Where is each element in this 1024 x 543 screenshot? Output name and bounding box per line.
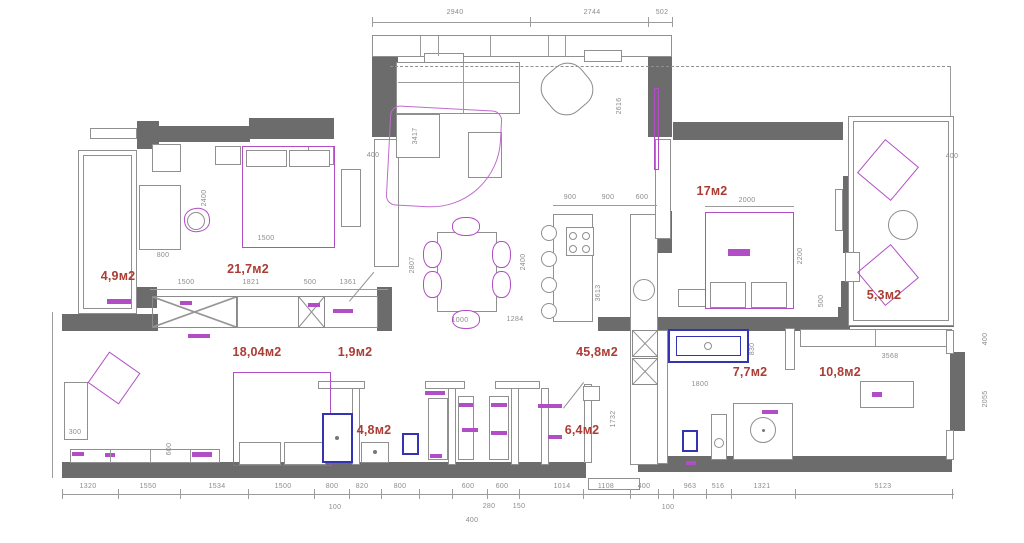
dimension-label: 5123 bbox=[875, 483, 892, 491]
dimension-label: 400 bbox=[367, 152, 380, 160]
plumbing-fixture bbox=[682, 430, 698, 452]
cabinet-outline bbox=[785, 328, 795, 370]
hatched-wardrobe bbox=[632, 330, 658, 357]
dimension-tick bbox=[349, 489, 350, 499]
furniture-outline bbox=[242, 146, 335, 248]
chair-outline bbox=[492, 271, 511, 298]
annotation-mark bbox=[728, 249, 750, 256]
hatched-wardrobe bbox=[632, 358, 658, 385]
dimension-tick bbox=[795, 489, 796, 499]
dimension-tick bbox=[672, 17, 673, 27]
dimension-line bbox=[110, 450, 111, 463]
dimension-line bbox=[565, 36, 566, 56]
area-label: 1,9м2 bbox=[338, 345, 373, 359]
dimension-label: 1500 bbox=[178, 279, 195, 287]
dimension-label: 1800 bbox=[692, 381, 709, 389]
circle-fixture bbox=[541, 251, 557, 267]
annotation-mark bbox=[192, 452, 212, 457]
circle-fixture bbox=[888, 210, 918, 240]
dashed-ceiling-line bbox=[390, 66, 950, 67]
dimension-tick bbox=[248, 489, 249, 499]
circle-fixture bbox=[582, 245, 590, 253]
dimension-tick bbox=[519, 489, 520, 499]
circle-fixture bbox=[582, 232, 590, 240]
cabinet-outline bbox=[584, 50, 622, 62]
rug-outline bbox=[385, 105, 502, 211]
dimension-label: 3568 bbox=[882, 353, 899, 361]
cabinet-outline bbox=[541, 388, 549, 465]
dimension-label: 500 bbox=[818, 295, 826, 308]
cabinet-outline bbox=[215, 146, 241, 165]
dimension-line bbox=[150, 289, 388, 290]
cabinet-outline bbox=[845, 252, 860, 282]
dimension-label: 280 bbox=[483, 503, 496, 511]
wall-segment bbox=[648, 55, 672, 137]
circle-fixture bbox=[633, 279, 655, 301]
chair-outline bbox=[452, 217, 480, 236]
wall-segment bbox=[377, 287, 392, 331]
dimension-line bbox=[548, 36, 549, 56]
dimension-tick bbox=[530, 17, 531, 27]
dimension-label: 150 bbox=[513, 503, 526, 511]
cabinet-outline bbox=[711, 414, 727, 460]
chair-outline bbox=[423, 271, 442, 298]
dimension-label: 100 bbox=[662, 504, 675, 512]
dimension-line bbox=[62, 494, 954, 495]
hatched-wardrobe bbox=[298, 296, 325, 328]
chair-outline bbox=[492, 241, 511, 268]
dimension-label: 820 bbox=[356, 483, 369, 491]
cabinet-outline bbox=[152, 144, 181, 172]
cabinet-outline bbox=[583, 386, 600, 401]
dimension-label: 400 bbox=[982, 333, 990, 346]
annotation-mark bbox=[188, 334, 210, 338]
cabinet-outline bbox=[428, 398, 448, 460]
area-label: 5,3м2 bbox=[867, 288, 902, 302]
area-label: 4,9м2 bbox=[101, 269, 136, 283]
dimension-tick bbox=[487, 489, 488, 499]
dimension-line bbox=[398, 82, 520, 83]
dimension-label: 2000 bbox=[739, 197, 756, 205]
dimension-tick bbox=[314, 489, 315, 499]
dimension-label: 800 bbox=[326, 483, 339, 491]
cabinet-outline bbox=[341, 169, 361, 227]
dimension-label: 400 bbox=[466, 517, 479, 525]
annotation-mark bbox=[107, 299, 131, 304]
annotation-mark bbox=[459, 403, 473, 407]
area-label: 6,4м2 bbox=[565, 423, 600, 437]
dimension-tick bbox=[706, 489, 707, 499]
drain-dot bbox=[762, 429, 765, 432]
dimension-label: 900 bbox=[564, 194, 577, 202]
annotation-mark bbox=[333, 309, 353, 313]
dimension-label: 600 bbox=[496, 483, 509, 491]
furniture-outline bbox=[705, 212, 794, 309]
dimension-tick bbox=[419, 489, 420, 499]
cabinet-outline bbox=[678, 289, 706, 307]
dimension-label: 1321 bbox=[754, 483, 771, 491]
cabinet-outline bbox=[83, 155, 132, 309]
cabinet-outline bbox=[237, 296, 299, 328]
annotation-mark bbox=[425, 391, 445, 395]
dimension-line bbox=[438, 36, 439, 56]
dimension-label: 2940 bbox=[447, 9, 464, 17]
dimension-label: 2400 bbox=[201, 190, 209, 207]
dimension-tick bbox=[180, 489, 181, 499]
cabinet-outline bbox=[425, 381, 465, 389]
dimension-line bbox=[463, 63, 464, 113]
dimension-label: 100 bbox=[329, 504, 342, 512]
annotation-mark bbox=[538, 404, 562, 408]
dimension-label: 2807 bbox=[409, 257, 417, 274]
dimension-label: 600 bbox=[462, 483, 475, 491]
dimension-tick bbox=[630, 489, 631, 499]
chair-outline bbox=[423, 241, 442, 268]
wall-segment bbox=[158, 126, 250, 142]
dimension-tick bbox=[648, 17, 649, 27]
area-label: 17м2 bbox=[697, 184, 728, 198]
floor-plan-canvas: 2940274450215001821500136124008001500400… bbox=[0, 0, 1024, 543]
dimension-label: 500 bbox=[304, 279, 317, 287]
dimension-tick bbox=[673, 489, 674, 499]
cabinet-outline bbox=[511, 388, 519, 465]
circle-fixture bbox=[704, 342, 712, 350]
dimension-tick bbox=[372, 17, 373, 27]
annotation-mark bbox=[308, 303, 320, 307]
dimension-label: 2400 bbox=[520, 254, 528, 271]
dimension-label: 400 bbox=[638, 483, 651, 491]
dimension-label: 1000 bbox=[452, 317, 469, 325]
dimension-label: 1014 bbox=[554, 483, 571, 491]
annotation-mark bbox=[180, 301, 192, 305]
dimension-label: 3613 bbox=[595, 285, 603, 302]
dimension-label: 600 bbox=[166, 443, 174, 456]
cabinet-outline bbox=[860, 381, 914, 408]
dimension-tick bbox=[952, 489, 953, 499]
dimension-label: 2055 bbox=[982, 391, 990, 408]
dimension-tick bbox=[658, 489, 659, 499]
dimension-line bbox=[52, 312, 53, 478]
cabinet-outline bbox=[437, 232, 497, 312]
dimension-label: 2744 bbox=[584, 9, 601, 17]
cabinet-outline bbox=[90, 128, 137, 139]
circle-fixture bbox=[541, 303, 557, 319]
door-swing-line bbox=[563, 382, 584, 409]
area-label: 10,8м2 bbox=[819, 365, 861, 379]
dimension-line bbox=[372, 22, 672, 23]
dimension-label: 800 bbox=[157, 252, 170, 260]
annotation-mark bbox=[762, 410, 778, 414]
annotation-mark bbox=[72, 452, 84, 456]
plumbing-fixture bbox=[402, 433, 419, 455]
dimension-label: 800 bbox=[394, 483, 407, 491]
dimension-label: 1361 bbox=[340, 279, 357, 287]
annotation-mark bbox=[491, 431, 507, 435]
area-label: 21,7м2 bbox=[227, 262, 269, 276]
cabinet-outline bbox=[139, 185, 181, 250]
dimension-label: 1732 bbox=[610, 411, 618, 428]
cabinet-outline bbox=[372, 35, 672, 57]
circle-fixture bbox=[373, 450, 377, 454]
furniture-outline bbox=[88, 352, 141, 405]
dimension-label: 300 bbox=[69, 429, 82, 437]
dimension-label: 1500 bbox=[275, 483, 292, 491]
dimension-label: 830 bbox=[749, 343, 757, 356]
circle-fixture bbox=[541, 277, 557, 293]
circle-fixture bbox=[541, 225, 557, 241]
furniture-outline bbox=[233, 372, 331, 466]
dimension-line bbox=[705, 206, 794, 207]
annotation-mark bbox=[872, 392, 882, 397]
area-label: 4,8м2 bbox=[357, 423, 392, 437]
cabinet-outline bbox=[448, 388, 456, 465]
dimension-label: 400 bbox=[946, 153, 959, 161]
dimension-line bbox=[420, 36, 421, 56]
dimension-label: 963 bbox=[684, 483, 697, 491]
area-label: 45,8м2 bbox=[576, 345, 618, 359]
wall-segment bbox=[249, 118, 334, 139]
dimension-tick bbox=[381, 489, 382, 499]
cabinet-outline bbox=[946, 330, 954, 354]
dimension-label: 502 bbox=[656, 9, 669, 17]
circle-fixture bbox=[187, 212, 205, 230]
dimension-label: 1821 bbox=[243, 279, 260, 287]
wall-segment bbox=[62, 314, 158, 331]
dimension-tick bbox=[452, 489, 453, 499]
dimension-line bbox=[490, 36, 491, 56]
dimension-tick bbox=[118, 489, 119, 499]
dimension-label: 3417 bbox=[412, 128, 420, 145]
area-label: 18,04м2 bbox=[233, 345, 282, 359]
annotation-mark bbox=[548, 435, 562, 439]
dimension-label: 1108 bbox=[598, 483, 614, 491]
dimension-label: 2200 bbox=[797, 248, 805, 265]
area-label: 7,7м2 bbox=[733, 365, 768, 379]
dimension-line bbox=[950, 66, 951, 116]
dimension-line bbox=[553, 205, 657, 206]
dimension-label: 1500 bbox=[258, 235, 275, 243]
annotation-mark bbox=[686, 461, 696, 465]
dimension-label: 1550 bbox=[140, 483, 157, 491]
annotation-mark bbox=[491, 403, 507, 407]
circle-fixture bbox=[714, 438, 724, 448]
dimension-label: 1534 bbox=[209, 483, 226, 491]
dimension-line bbox=[875, 330, 876, 346]
dimension-tick bbox=[62, 489, 63, 499]
hatched-wardrobe bbox=[152, 296, 237, 328]
cabinet-outline bbox=[946, 430, 954, 460]
dimension-label: 900 bbox=[602, 194, 615, 202]
dimension-label: 1320 bbox=[80, 483, 97, 491]
circle-fixture bbox=[569, 232, 577, 240]
dimension-tick bbox=[731, 489, 732, 499]
wall-segment bbox=[950, 352, 965, 431]
dimension-line bbox=[190, 450, 191, 463]
circle-fixture bbox=[569, 245, 577, 253]
dimension-tick bbox=[583, 489, 584, 499]
annotation-mark bbox=[430, 454, 442, 458]
wall-segment bbox=[673, 122, 843, 140]
dimension-label: 1284 bbox=[507, 316, 524, 324]
dimension-label: 516 bbox=[712, 483, 725, 491]
cabinet-outline bbox=[835, 189, 843, 231]
circle-fixture bbox=[335, 436, 339, 440]
cabinet-outline bbox=[800, 329, 952, 347]
dimension-line bbox=[150, 450, 151, 463]
annotation-mark bbox=[462, 428, 478, 432]
dimension-label: 2616 bbox=[616, 98, 624, 115]
dimension-label: 600 bbox=[636, 194, 649, 202]
furniture-outline bbox=[654, 88, 659, 170]
